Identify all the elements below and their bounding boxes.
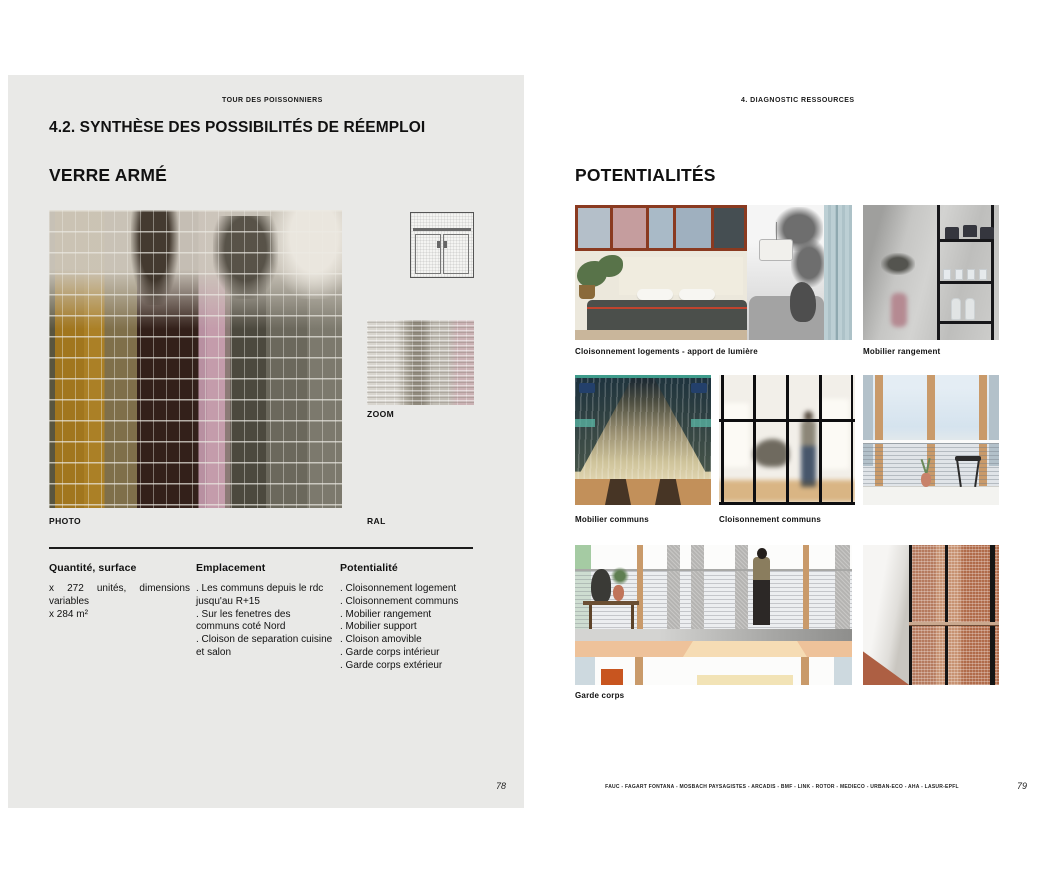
pendant-lamp [759, 239, 793, 261]
cabinet-shelf [937, 239, 994, 242]
book-spread: TOUR DES POISSONNIERS 4.2. SYNTHÈSE DES … [0, 0, 1049, 893]
column-heading: Emplacement [196, 562, 335, 574]
standing-person [801, 421, 816, 487]
black-frame [945, 545, 948, 685]
potential-item: . Mobilier rangement [340, 609, 473, 622]
concrete-column [735, 545, 748, 629]
transom-bar [719, 419, 855, 422]
foliage [791, 239, 827, 287]
caption-garde-corps: Garde corps [575, 691, 624, 700]
carafe [951, 298, 961, 320]
image-couloir-cuivre [863, 545, 999, 685]
drawing-door-leaf [415, 234, 441, 274]
drawing-handle [437, 241, 440, 248]
handrail [863, 440, 999, 443]
location-item: . Sur les fenetres des communs coté Nord [196, 609, 335, 635]
caption-mobilier-rangement: Mobilier rangement [863, 347, 940, 356]
drinking-glass [955, 269, 963, 280]
drinking-glass [967, 269, 975, 280]
potential-item: . Garde corps extérieur [340, 660, 473, 673]
vase [613, 585, 624, 601]
wood-post [801, 657, 809, 685]
wood-post [637, 545, 643, 629]
bedroom-scene [575, 205, 747, 340]
white-sill [863, 486, 999, 505]
base-rail [719, 502, 855, 506]
photo-label: PHOTO [49, 516, 81, 526]
window-below [575, 657, 595, 685]
material-title: VERRE ARMÉ [49, 165, 167, 186]
column-location: Emplacement . Les communs depuis le rdc … [196, 562, 335, 660]
image-mobilier-rangement [863, 205, 999, 340]
glass-pane [613, 208, 647, 248]
person-head [757, 548, 767, 559]
verre-arme-zoom-photo [367, 320, 474, 405]
seated-person [753, 439, 789, 467]
copper-wired-glass [909, 545, 999, 685]
pillow [679, 289, 715, 300]
bed-blanket [587, 300, 747, 332]
standing-person [753, 557, 770, 625]
left-page-number: 78 [496, 781, 506, 791]
door-elevation-drawing [410, 212, 474, 278]
zoom-texture-overlay [367, 320, 474, 405]
chair [579, 383, 595, 393]
glass-texture [909, 545, 999, 685]
plant [611, 567, 629, 585]
column-quantity: Quantité, surface x 272 unités, dimensio… [49, 562, 190, 621]
ceiling-highlight [683, 641, 807, 657]
quantity-line: x 272 unités, dimensions variables [49, 583, 190, 609]
concrete-column [691, 545, 704, 629]
glass-pane [649, 208, 673, 248]
black-frame [990, 545, 995, 685]
window-light [723, 403, 749, 467]
caption-cloisonnement-communs: Cloisonnement communs [719, 515, 821, 524]
handrail [909, 622, 999, 625]
section-title: 4.2. SYNTHÈSE DES POSSIBILITÉS DE RÉEMPL… [49, 119, 425, 137]
drawing-handle [444, 241, 447, 248]
terracotta-floor [863, 651, 909, 685]
wood-post [803, 545, 809, 629]
chair [691, 383, 707, 393]
vessel [980, 227, 994, 239]
concrete-column [835, 545, 850, 629]
window-below [834, 657, 852, 685]
wood-post [635, 657, 643, 685]
image-garde-corps [575, 545, 852, 685]
verre-arme-photo [49, 210, 342, 508]
location-item: . Les communs depuis le rdc jusqu'au R+1… [196, 583, 335, 609]
vessel [963, 225, 977, 237]
location-item: . Cloison de separation cuisine et salon [196, 634, 335, 660]
quantity-line: x 284 m² [49, 609, 190, 622]
wire-grid-overlay [49, 210, 342, 508]
ral-label: RAL [367, 516, 386, 526]
potential-item: . Mobilier support [340, 621, 473, 634]
divider-rule [49, 547, 473, 549]
window-light [819, 399, 849, 469]
glass-edge [575, 375, 711, 378]
right-page: 4. DIAGNOSTIC RESSOURCES POTENTIALITÉS [524, 75, 1040, 808]
person-silhouette [790, 282, 816, 322]
image-cloisonnement-logements [575, 205, 852, 340]
cork-floor [575, 479, 711, 505]
right-running-header: 4. DIAGNOSTIC RESSOURCES [741, 97, 854, 104]
drinking-glass [943, 269, 951, 280]
image-balcon-render [863, 375, 999, 505]
potential-item: . Cloison amovible [340, 634, 473, 647]
black-frame [909, 545, 912, 685]
mullion [851, 375, 854, 505]
image-cloisonnement-communs [719, 375, 855, 505]
bedroom-floor [575, 330, 747, 340]
concrete-column [667, 545, 680, 629]
table-corner [575, 419, 595, 427]
cabinet-shelf [937, 281, 994, 284]
drawing-transom [413, 228, 471, 231]
cabinet-shelf [937, 321, 994, 324]
bottle-shadow [891, 293, 907, 327]
caption-cloisonnement-logements: Cloisonnement logements - apport de lumi… [575, 347, 758, 356]
mullion [753, 375, 756, 505]
column-potential: Potentialité . Cloisonnement logement . … [340, 562, 473, 673]
caption-mobilier-communs: Mobilier communs [575, 515, 649, 524]
seated-person [591, 569, 611, 603]
carafe [965, 298, 975, 320]
drinking-glass [979, 269, 987, 280]
mullion [786, 375, 789, 505]
column-heading: Quantité, surface [49, 562, 190, 574]
potential-item: . Cloisonnement logement [340, 583, 473, 596]
cream-panel [697, 675, 793, 685]
glass-pane [578, 208, 610, 248]
mullion [819, 375, 822, 505]
bw-lounge-photo [747, 205, 824, 340]
cabinet-frame [991, 205, 994, 340]
right-page-number: 79 [1017, 781, 1027, 791]
column-heading: Potentialité [340, 562, 473, 574]
plant-pot [579, 285, 595, 299]
left-running-header: TOUR DES POISSONNIERS [222, 97, 323, 104]
cabinet-frame [937, 205, 940, 340]
bowl-shadow [881, 253, 915, 275]
potentialites-title: POTENTIALITÉS [575, 165, 716, 186]
zoom-label: ZOOM [367, 409, 394, 419]
drawing-door-leaf [443, 234, 469, 274]
left-page: TOUR DES POISSONNIERS 4.2. SYNTHÈSE DES … [8, 75, 524, 808]
potential-item: . Garde corps intérieur [340, 647, 473, 660]
table-corner [691, 419, 711, 427]
glass-pane [676, 208, 712, 248]
image-mobilier-communs [575, 375, 711, 505]
orange-artwork [601, 669, 623, 685]
pillow [637, 289, 673, 300]
table-leg [589, 605, 592, 629]
footer-credits: FAUC - FAGART FONTANA - MOSBACH PAYSAGIS… [570, 784, 994, 790]
clerestory-windows [575, 205, 747, 251]
glass-pane [714, 208, 744, 248]
table-leg [631, 605, 634, 629]
floor-slab [575, 629, 852, 641]
mullion [721, 375, 724, 505]
vessel [945, 227, 959, 239]
potential-item: . Cloisonnement communs [340, 596, 473, 609]
blue-curtain-strip [824, 205, 852, 340]
vase [921, 473, 931, 487]
